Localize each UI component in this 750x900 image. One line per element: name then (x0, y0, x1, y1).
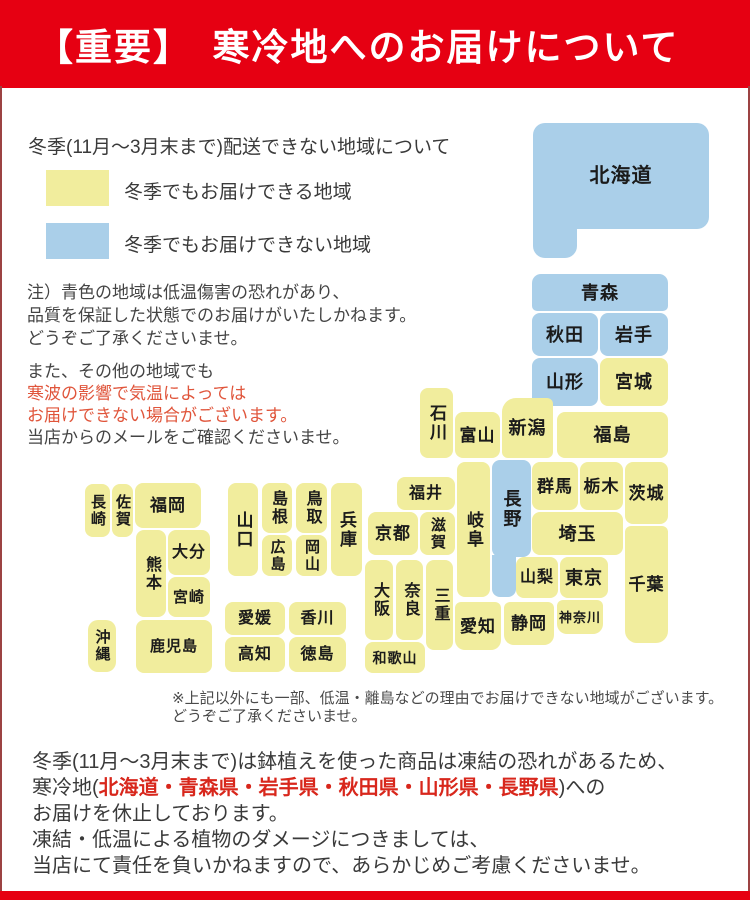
map-block-tokushima: 徳島 (289, 637, 346, 672)
map-block-oita: 大分 (168, 530, 210, 575)
map-block-shiga: 滋賀 (420, 512, 455, 555)
map-block-kyoto: 京都 (368, 512, 418, 555)
map-block-fukui: 福井 (397, 477, 455, 510)
japan-prefecture-map: 北海道青森秋田岩手山形宮城福島新潟富山石川福井群馬栃木茨城埼玉千葉長野岐阜山梨東… (0, 0, 750, 750)
map-block-ishikawa: 石川 (420, 388, 453, 458)
map-block-okayama: 岡山 (296, 535, 327, 576)
map-block-tottori: 鳥取 (296, 483, 327, 533)
map-block-iwate: 岩手 (600, 313, 668, 356)
map-block-ehime: 愛媛 (225, 602, 285, 635)
map-block-kagawa: 香川 (289, 602, 346, 635)
map-block-nagasaki: 長崎 (85, 484, 110, 537)
map-block-shizuoka: 静岡 (504, 602, 554, 645)
map-block-saga: 佐賀 (112, 484, 133, 537)
footer-line: 冬季(11月～3月末まで)は鉢植えを使った商品は凍結の恐れがあるため、 (32, 749, 677, 775)
map-block-tokyo: 東京 (560, 557, 608, 598)
map-block-kagoshima: 鹿児島 (136, 620, 212, 673)
map-block-tochigi: 栃木 (580, 462, 623, 510)
map-block-hokkaido: 北海道 (533, 123, 709, 229)
footer-line2-suffix: )への (559, 777, 606, 799)
map-footnote: ※上記以外にも一部、低温・離島などの理由でお届けできない地域がございます。 どう… (172, 690, 723, 726)
footer-line-cold-regions: 寒冷地(北海道・青森県・岩手県・秋田県・山形県・長野県)への (32, 775, 677, 801)
map-block-fukuoka: 福岡 (135, 483, 201, 528)
map-block-gunma: 群馬 (532, 462, 578, 510)
map-block-osaka: 大阪 (365, 560, 393, 640)
map-block-chiba: 千葉 (625, 526, 668, 643)
map-block-yamaguchi: 山口 (228, 483, 258, 576)
map-block-saitama: 埼玉 (532, 512, 623, 555)
bottom-accent-bar (0, 891, 750, 900)
map-block-akita: 秋田 (532, 313, 598, 356)
map-block-mie: 三重 (426, 560, 453, 650)
map-block-hokkaido-foot (533, 215, 577, 258)
map-block-miyazaki: 宮崎 (168, 577, 210, 617)
map-block-niigata: 新潟 (502, 398, 553, 458)
footer-line: 当店にて責任を負いかねますので、あらかじめご考慮くださいませ。 (32, 853, 677, 879)
map-block-kanagawa: 神奈川 (557, 600, 603, 634)
map-block-kumamoto: 熊本 (136, 530, 166, 617)
footer-line: 凍結・低温による植物のダメージにつきましては、 (32, 827, 677, 853)
map-block-fukushima: 福島 (557, 412, 668, 458)
map-block-nara: 奈良 (396, 560, 423, 640)
footer-line: お届けを休止しております。 (32, 801, 677, 827)
map-block-aichi: 愛知 (455, 602, 501, 650)
map-block-toyama: 富山 (455, 412, 500, 458)
map-footnote-line: どうぞご了承くださいませ。 (172, 708, 723, 726)
map-block-okinawa: 沖縄 (88, 620, 116, 672)
map-block-wakayama: 和歌山 (365, 642, 425, 673)
map-block-nagano: 長野 (492, 460, 531, 557)
map-block-hyogo: 兵庫 (331, 483, 362, 576)
map-block-hiroshima: 広島 (262, 535, 292, 576)
map-block-kochi: 高知 (225, 637, 285, 672)
map-footnote-line: ※上記以外にも一部、低温・離島などの理由でお届けできない地域がございます。 (172, 690, 723, 708)
map-block-ibaraki: 茨城 (625, 462, 668, 524)
map-block-gifu: 岐阜 (457, 462, 490, 597)
footer-paragraph: 冬季(11月～3月末まで)は鉢植えを使った商品は凍結の恐れがあるため、 寒冷地(… (32, 749, 677, 879)
footer-line2-prefix: 寒冷地( (32, 777, 99, 799)
map-block-miyagi: 宮城 (600, 358, 668, 406)
map-block-nagano-south (492, 555, 516, 597)
notice-page: 【重要】 寒冷地へのお届けについて 冬季(11月～3月末まで)配送できない地域に… (0, 0, 750, 900)
map-block-yamanashi: 山梨 (516, 557, 558, 598)
map-block-aomori: 青森 (532, 274, 668, 311)
footer-cold-region-list: 北海道・青森県・岩手県・秋田県・山形県・長野県 (99, 777, 559, 799)
map-block-shimane: 島根 (262, 483, 292, 533)
